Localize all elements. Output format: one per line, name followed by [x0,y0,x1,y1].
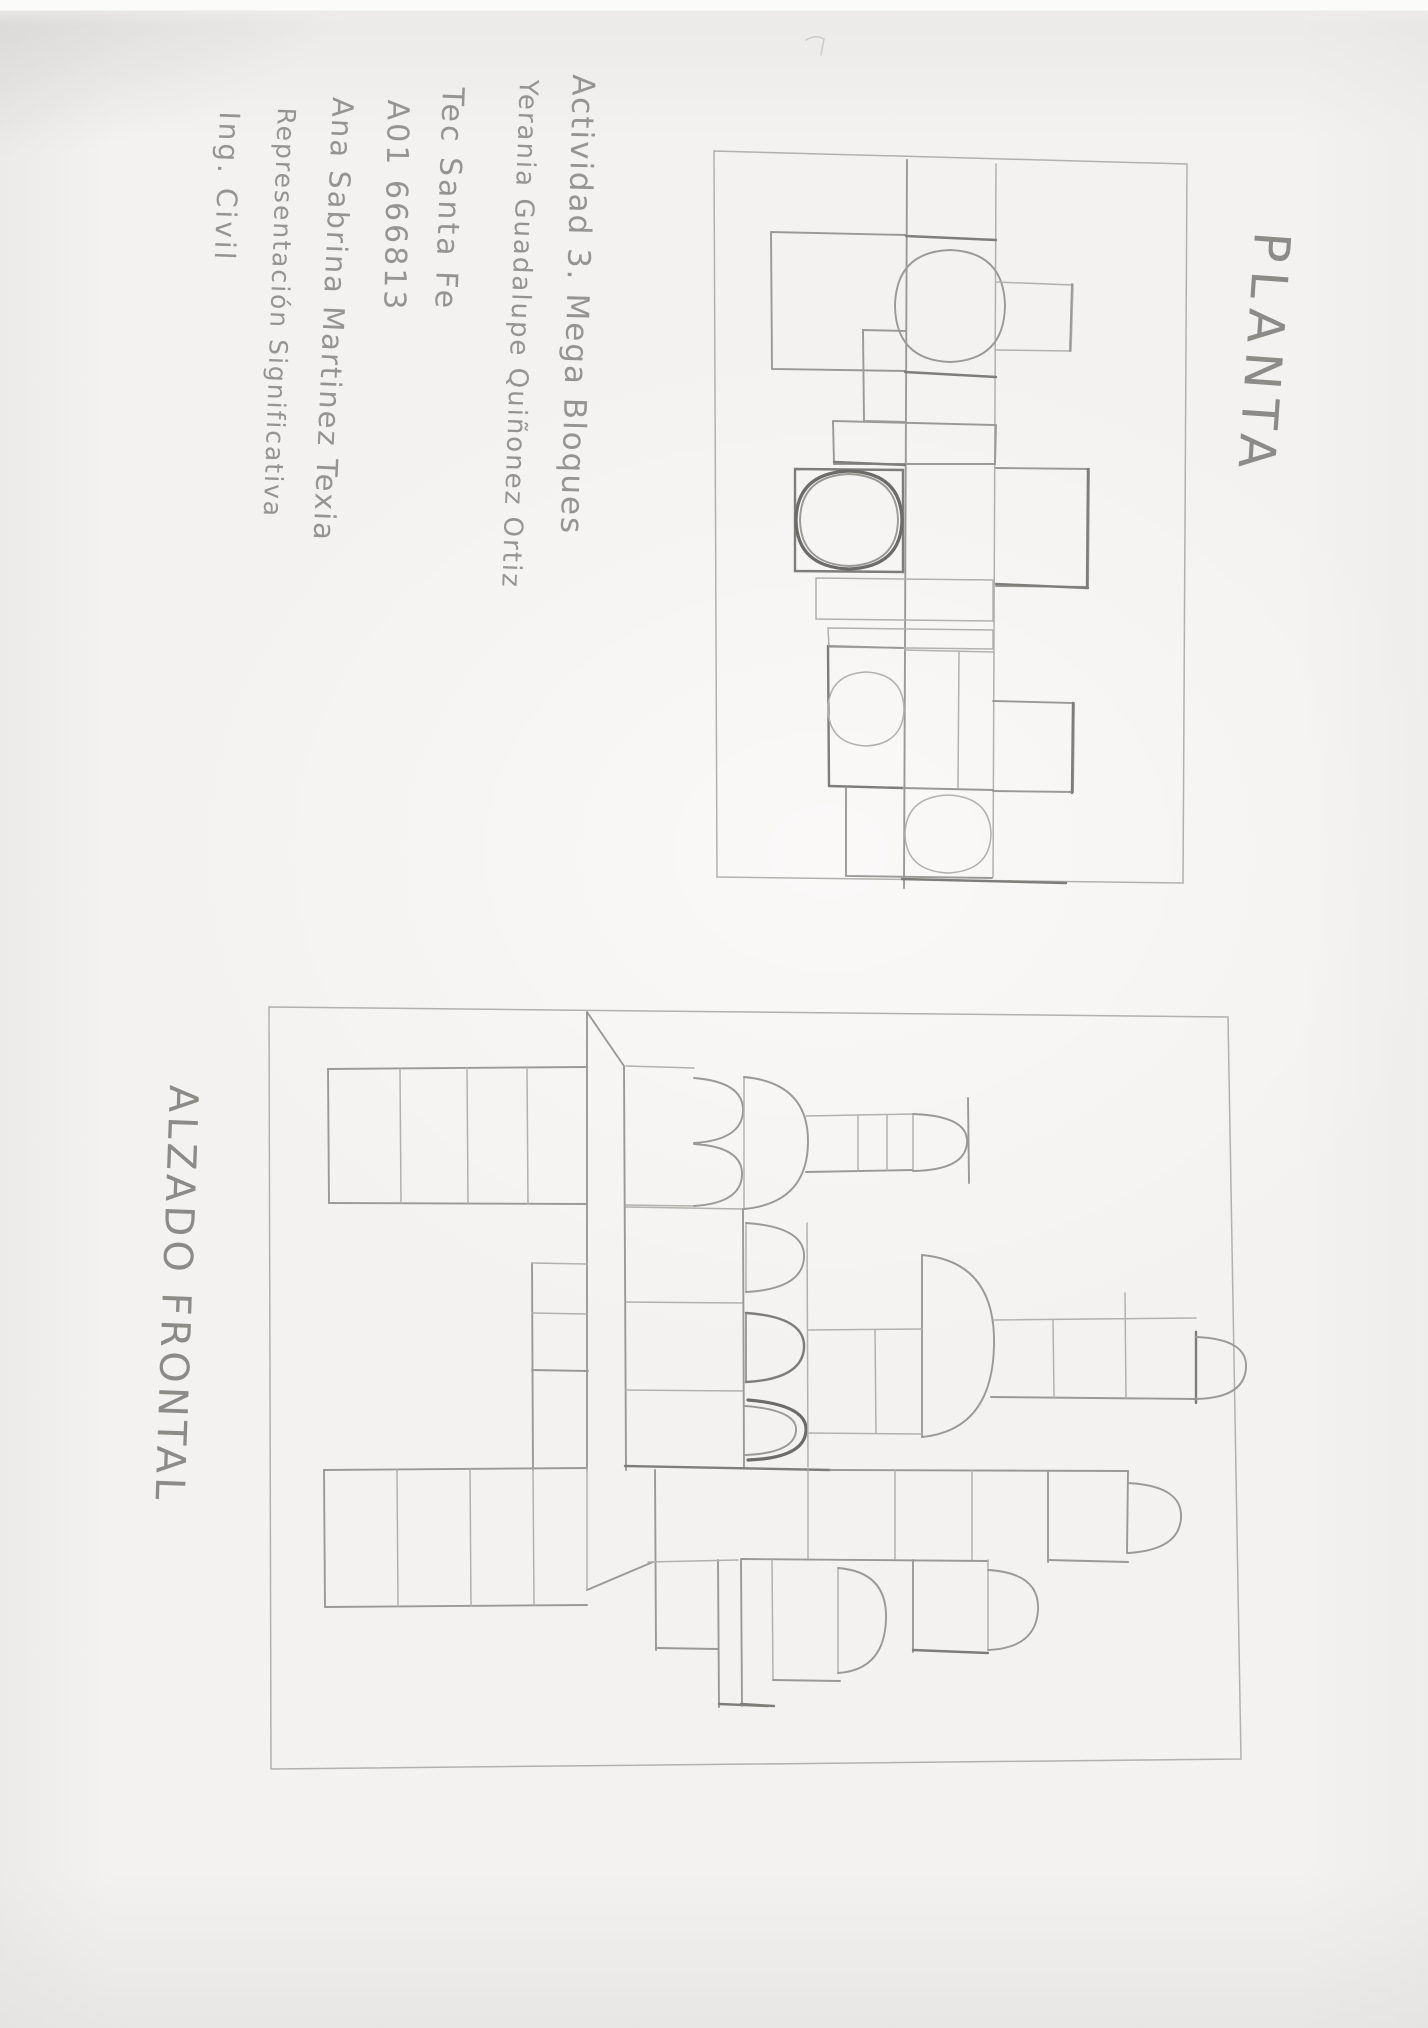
elevation-outer-border [269,1007,1241,1769]
plan-heavy-circle [796,471,902,569]
elevation-upper-band [328,1067,587,1204]
plan-small-circle [828,672,904,746]
elevation-small-column [532,1263,588,1470]
elevation-center-dome [922,1255,994,1437]
stray-pencil-mark [806,37,824,55]
elevation-upper-dome [744,1077,808,1209]
elevation-arch-pair [694,1078,743,1143]
plan-outer-border [714,151,1187,883]
elevation-bottom-blocks [741,1560,1038,1706]
plan-bottom-ellipse [905,795,991,873]
elevation-right-dome [1128,1483,1181,1553]
photographed-sketch-page: { "colors": { "paper": "#f4f2f0", "penci… [0,0,1428,2028]
elevation-center-dome-arm [922,1255,1246,1437]
elevation-drawing [269,1007,1246,1769]
elevation-tower [587,1012,626,1470]
elevation-lower-right-band [741,1470,1181,1562]
plan-rounded-block [895,250,1005,362]
pencil-drawings [0,0,1428,2028]
elevation-low-middle-stack [648,1470,768,1707]
elevation-lower-band [324,1468,653,1607]
elevation-left-domes [745,1223,808,1467]
plan-drawing [714,151,1187,888]
